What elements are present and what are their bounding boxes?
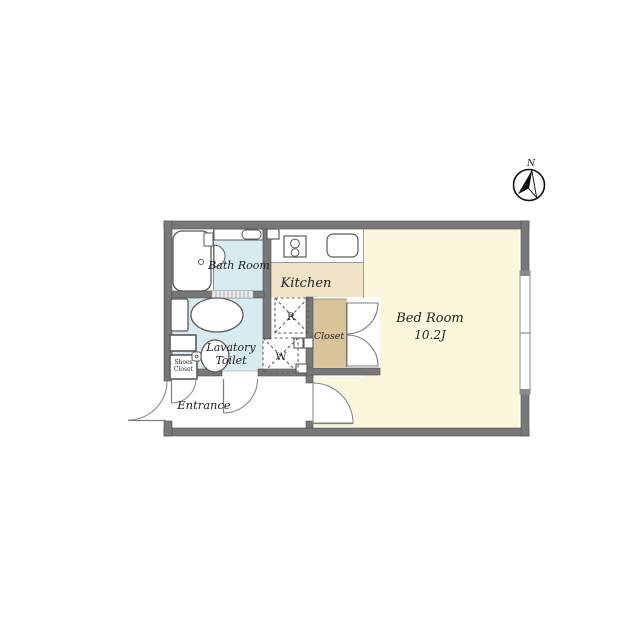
- toilet-bowl: [191, 298, 243, 332]
- shoes-closet-label-line2: Closet: [174, 366, 194, 373]
- refrigerator-space-label: R: [287, 311, 296, 323]
- washer-space-label: W: [276, 351, 287, 363]
- bath-faucet-icon: [204, 233, 213, 246]
- lavatory-label-line2: Toilet: [215, 354, 247, 367]
- wall-left-lower: [164, 421, 172, 436]
- wall-top: [164, 221, 529, 229]
- bath-sliding-door: [212, 291, 253, 299]
- entrance-label: Entrance: [176, 398, 231, 412]
- window: [520, 271, 530, 394]
- bathtub-drain-icon: [199, 260, 204, 265]
- kitchen-sink: [327, 234, 358, 257]
- lavatory-counter: [170, 335, 196, 351]
- floor-plan-svg: Bath Room Kitchen Bed Room 10.2J Lavator…: [0, 0, 640, 639]
- wall-bedroom-door-stub: [306, 421, 313, 428]
- bedroom-size-label: 10.2J: [414, 328, 447, 342]
- washbasin-tap-dot: [195, 355, 198, 358]
- kitchen-side-box: [267, 229, 279, 239]
- floor-plan-page: Bath Room Kitchen Bed Room 10.2J Lavator…: [0, 0, 640, 639]
- stove-burner-icon-bottom: [291, 249, 299, 257]
- kitchen-label: Kitchen: [280, 276, 332, 291]
- window-cap-bottom: [520, 389, 530, 394]
- bathroom-label: Bath Room: [207, 259, 270, 272]
- bath-sliding-door-track: [212, 291, 253, 299]
- stove-burner-icon-top: [291, 239, 300, 248]
- utility-box-2: [304, 338, 313, 348]
- shoes-closet-label-line1: Shoes: [174, 359, 192, 366]
- window-cap-top: [520, 271, 530, 276]
- lavatory-label-line1: Lavatory: [205, 341, 256, 354]
- bedroom-label: Bed Room: [395, 311, 463, 326]
- wall-closet-bottom: [306, 368, 380, 375]
- compass-north-label: N: [526, 158, 536, 169]
- wall-bath-kitchen: [263, 229, 271, 339]
- wall-bottom: [164, 428, 529, 436]
- closet-label: Closet: [314, 331, 345, 342]
- toilet-tank: [171, 299, 188, 331]
- bath-basin: [242, 230, 261, 239]
